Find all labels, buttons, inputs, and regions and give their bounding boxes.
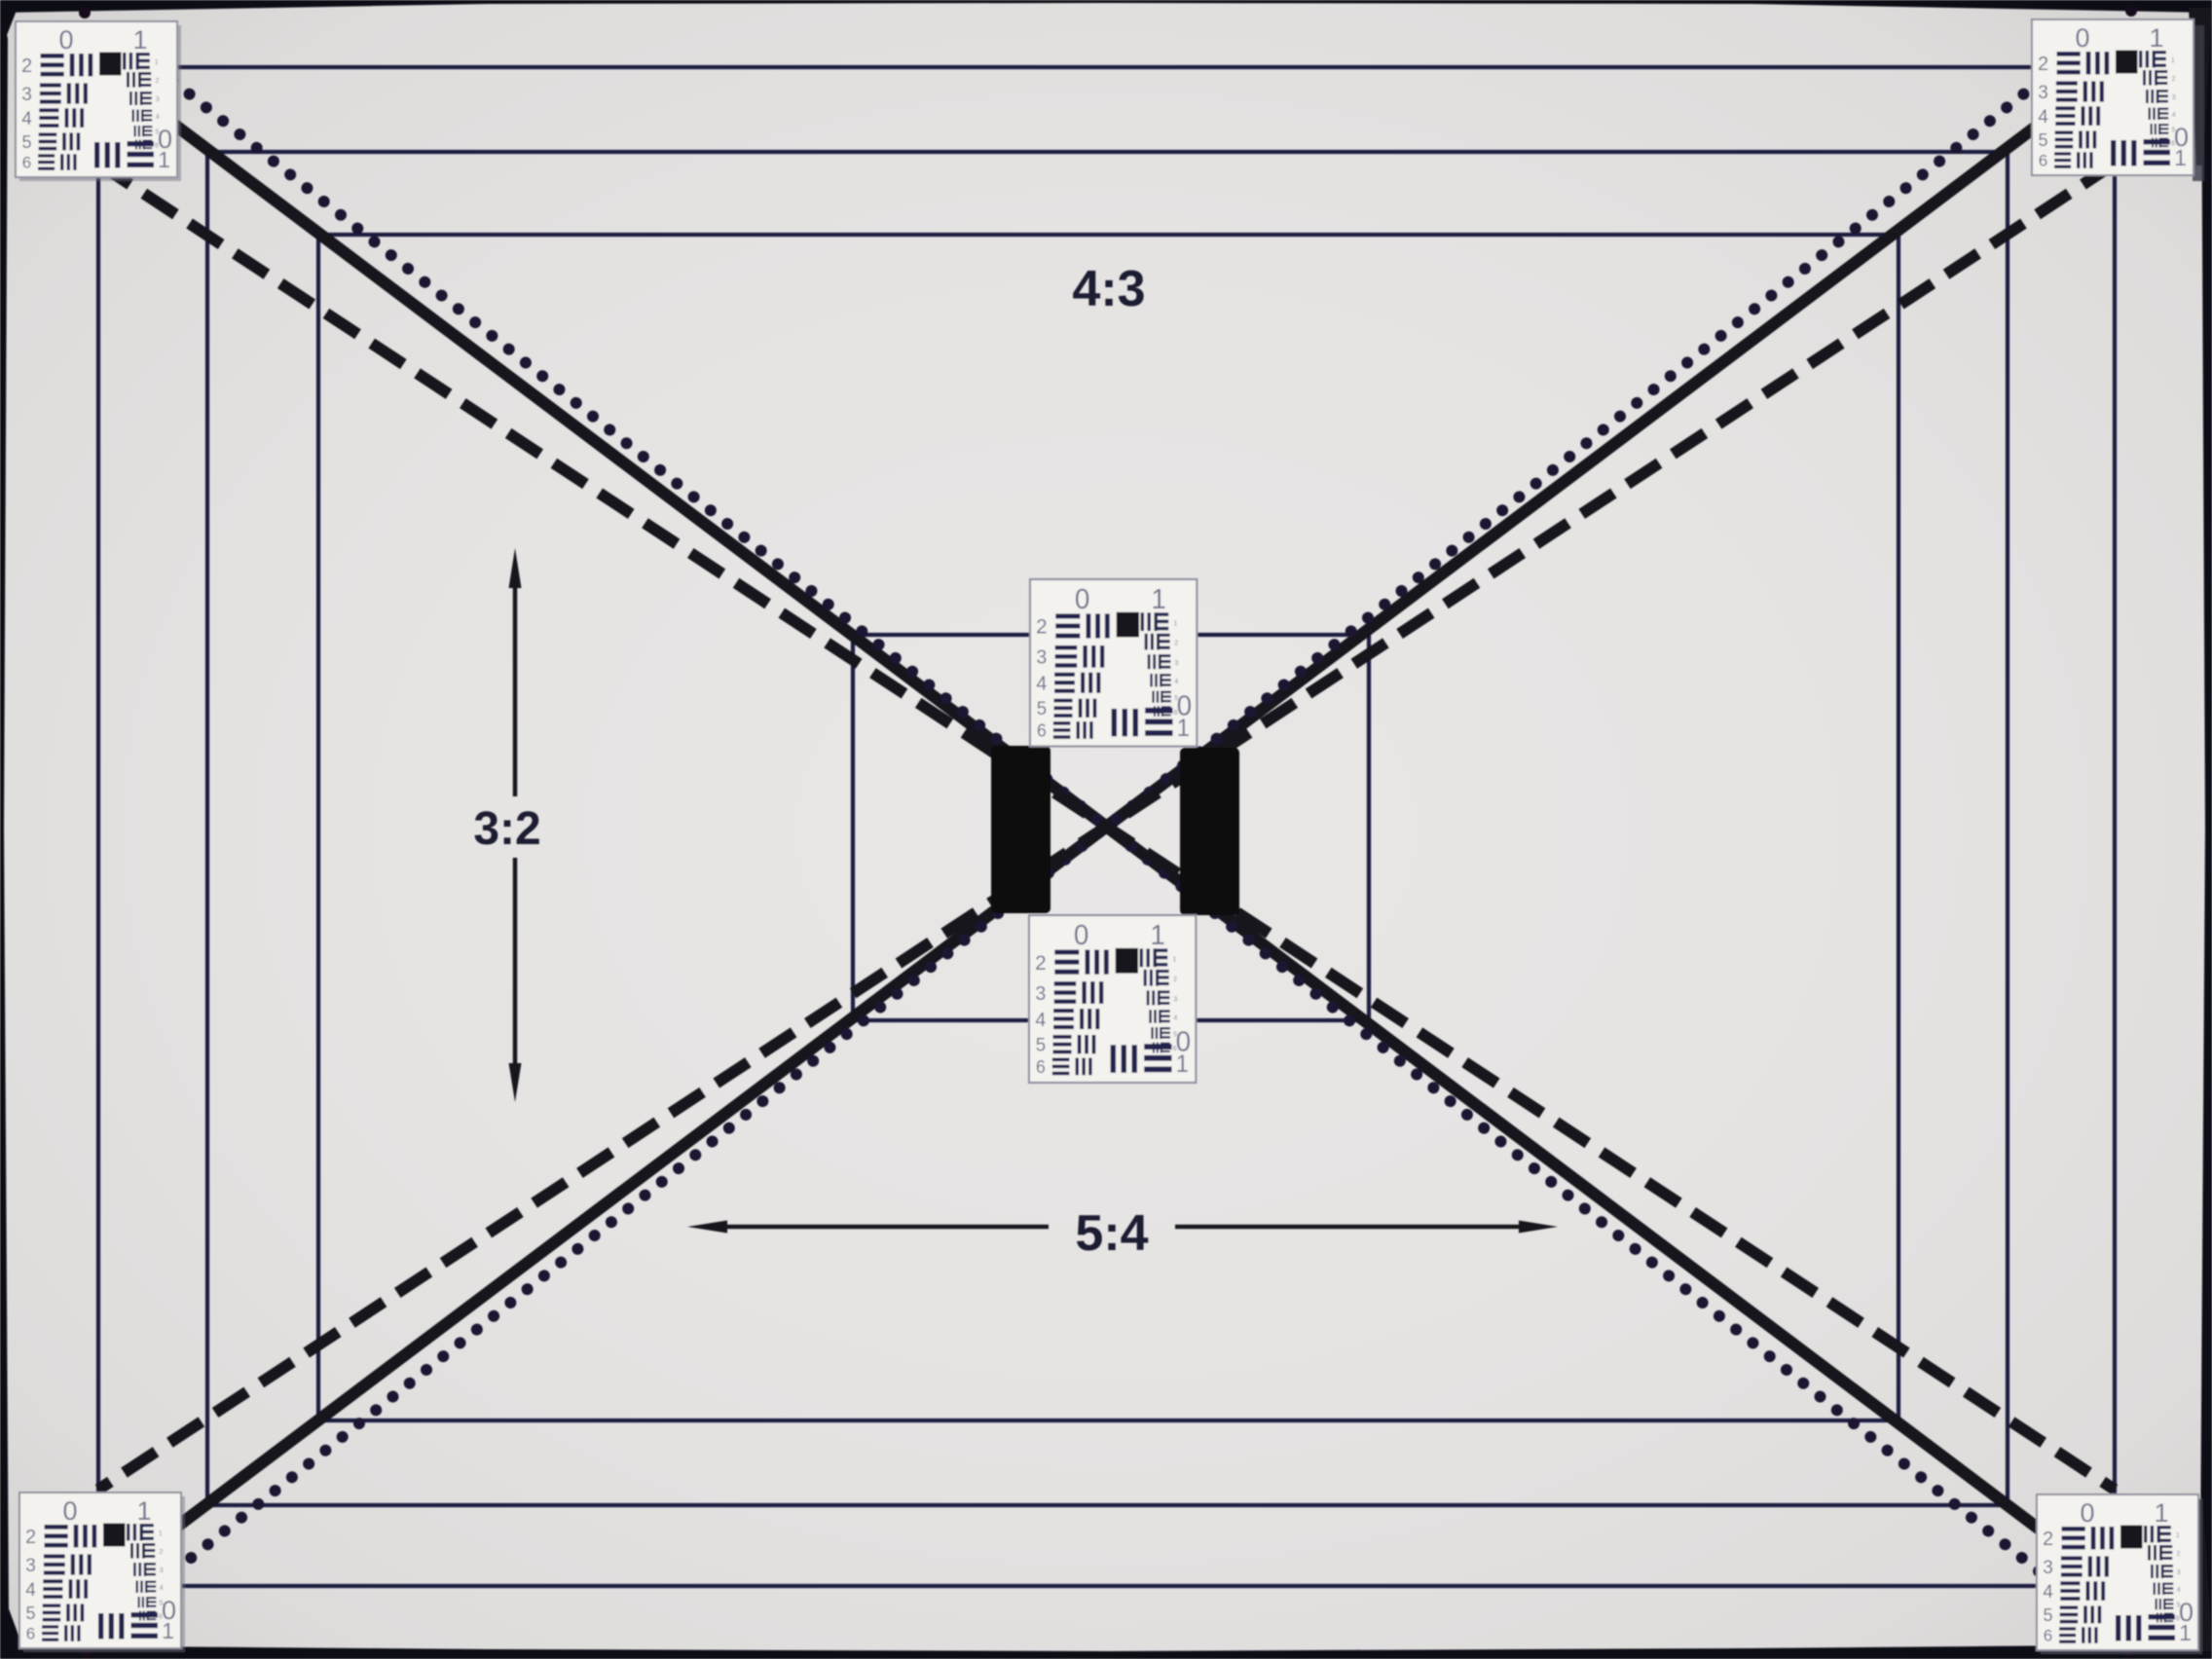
svg-text:4:3: 4:3: [1072, 261, 1145, 317]
svg-text:3:2: 3:2: [473, 803, 540, 855]
svg-text:5:4: 5:4: [1075, 1205, 1148, 1262]
